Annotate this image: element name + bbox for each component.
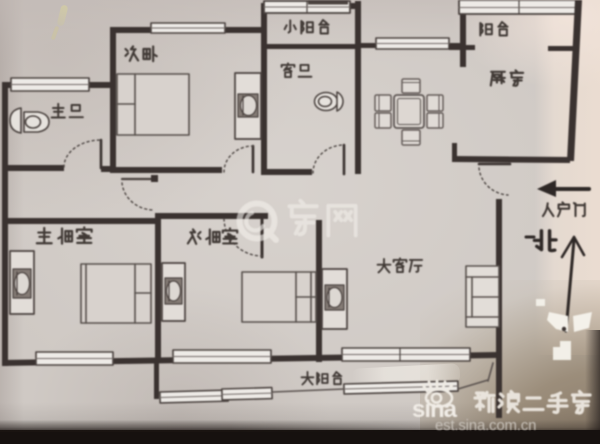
svg-text:est.sina.com.cn: est.sina.com.cn xyxy=(435,417,536,434)
